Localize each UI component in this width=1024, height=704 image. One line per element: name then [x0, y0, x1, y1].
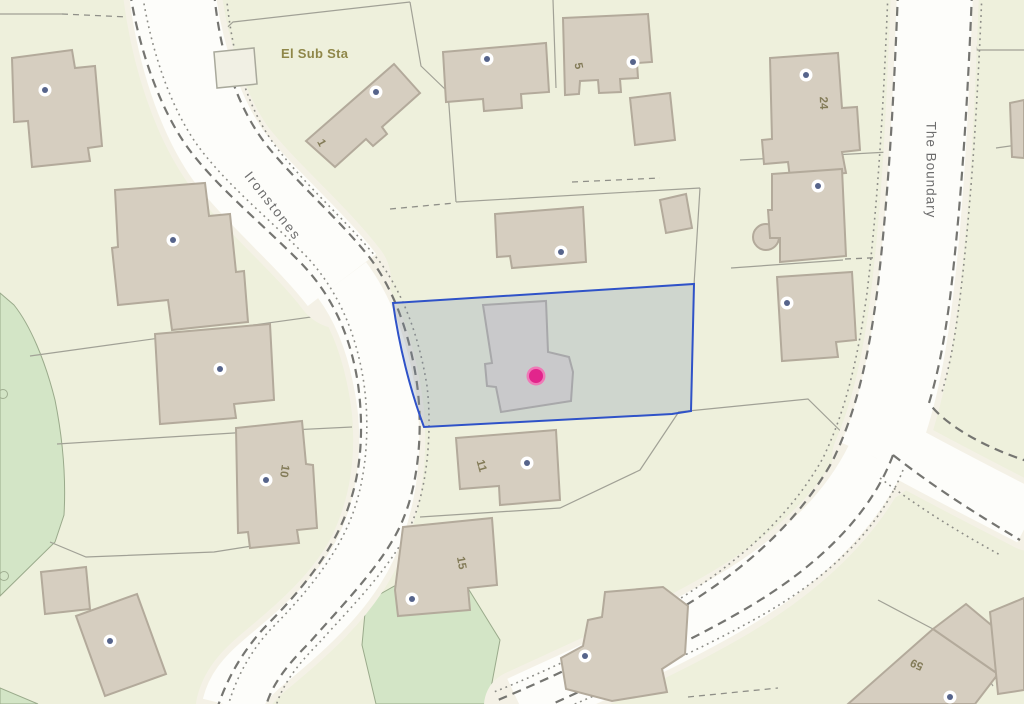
map-canvas[interactable] — [0, 0, 1024, 704]
substation-building — [214, 48, 257, 88]
building — [1010, 100, 1024, 158]
building-marker-icon[interactable] — [800, 69, 813, 82]
building-marker-icon[interactable] — [214, 363, 227, 376]
building-marker-icon[interactable] — [104, 635, 117, 648]
map-viewport[interactable]: El Sub Sta Ironstones The Boundary 1 5 2… — [0, 0, 1024, 704]
building-marker-icon[interactable] — [406, 593, 419, 606]
building-marker-icon[interactable] — [579, 650, 592, 663]
selected-property-marker-icon[interactable] — [527, 367, 546, 386]
building-marker-icon[interactable] — [555, 246, 568, 259]
building-outbuilding — [630, 93, 675, 145]
building-marker-icon[interactable] — [39, 84, 52, 97]
building-marker-icon[interactable] — [167, 234, 180, 247]
building-marker-icon[interactable] — [370, 86, 383, 99]
building — [768, 169, 846, 262]
building-marker-icon[interactable] — [481, 53, 494, 66]
building-marker-icon[interactable] — [627, 56, 640, 69]
building-marker-icon[interactable] — [521, 457, 534, 470]
building-outbuilding — [41, 567, 90, 614]
building-marker-icon[interactable] — [260, 474, 273, 487]
building-marker-icon[interactable] — [781, 297, 794, 310]
building-marker-icon[interactable] — [944, 691, 957, 704]
building-marker-icon[interactable] — [812, 180, 825, 193]
building-outbuilding — [660, 194, 692, 233]
